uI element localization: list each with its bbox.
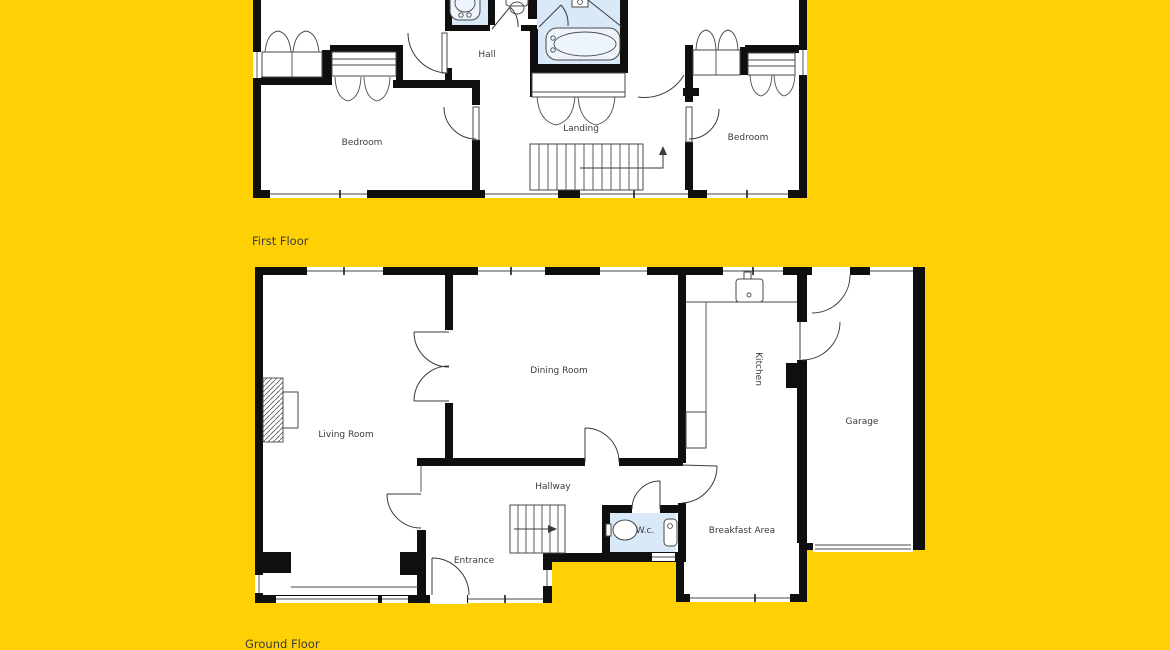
room-label-wc: W.c. xyxy=(636,526,655,536)
window xyxy=(307,267,383,275)
sink xyxy=(572,0,588,7)
room-label-bedroom-right: Bedroom xyxy=(728,133,769,143)
window xyxy=(723,267,783,275)
window xyxy=(270,190,367,198)
window xyxy=(417,466,426,492)
bathtub xyxy=(450,0,480,20)
bathtub xyxy=(546,28,620,60)
room-label-living-room: Living Room xyxy=(318,430,373,440)
first-floor-plan: Hall Landing Bedroom Bedroom xyxy=(253,0,807,198)
ground-floor-plan: Living Room Dining Room Kitchen Garage H… xyxy=(255,267,925,604)
window xyxy=(478,267,545,275)
window xyxy=(652,553,675,561)
room-label-bedroom-left: Bedroom xyxy=(342,138,383,148)
window xyxy=(600,267,647,275)
room-label-hall: Hall xyxy=(478,50,495,60)
window xyxy=(543,570,552,586)
window xyxy=(580,190,688,198)
window xyxy=(690,594,790,602)
window xyxy=(253,52,261,78)
garage-door xyxy=(813,542,913,552)
window xyxy=(485,190,558,198)
room-label-garage: Garage xyxy=(846,417,879,427)
floorplan-image: Hall Landing Bedroom Bedroom First Floor xyxy=(0,0,1170,650)
room-label-dining-room: Dining Room xyxy=(530,366,588,376)
floor-title-first: First Floor xyxy=(252,234,309,248)
floor-title-ground: Ground Floor xyxy=(245,637,320,650)
pillar xyxy=(786,363,797,388)
floorplan-page: Hall Landing Bedroom Bedroom First Floor xyxy=(0,0,1170,650)
window xyxy=(707,190,788,198)
window xyxy=(468,595,543,603)
wc-toilet xyxy=(664,519,677,546)
room-label-entrance: Entrance xyxy=(454,556,495,566)
window xyxy=(870,267,913,275)
room-label-kitchen: Kitchen xyxy=(753,352,763,386)
window xyxy=(255,575,263,593)
staircase xyxy=(510,505,565,553)
room-label-landing: Landing xyxy=(563,124,599,134)
room-label-breakfast-area: Breakfast Area xyxy=(709,526,775,536)
window xyxy=(799,50,807,75)
room-label-hallway: Hallway xyxy=(535,482,571,492)
